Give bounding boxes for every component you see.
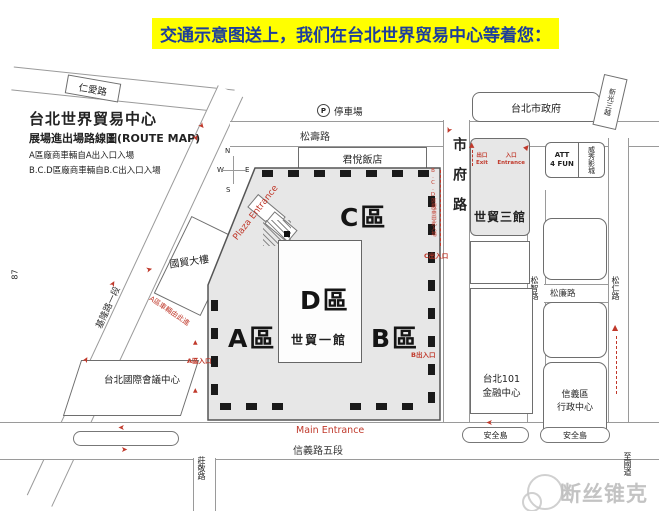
zone-c-label: C區 — [340, 198, 387, 234]
flow-arrow-up-icon: ▲ — [612, 324, 618, 332]
watermark-logo-circle — [522, 492, 542, 511]
parking-icon: P — [317, 104, 330, 117]
safety-island-label: 安全島 — [484, 430, 508, 441]
ticc-building-shape — [63, 360, 199, 416]
songren-road-label: 松仁路 — [610, 276, 621, 300]
legend-building-name: 台北世界貿易中心 — [29, 108, 157, 129]
shifu-road-label: 市府路 — [449, 137, 469, 227]
songshou-road-label: 松壽路 — [300, 128, 330, 143]
hall3-annex-block — [470, 241, 530, 284]
gate-b-label: B出入口 — [411, 349, 435, 359]
admin-line2: 行政中心 — [557, 400, 593, 413]
hall3-building: 世貿三館 出口 Exit 入口 Entrance — [470, 138, 530, 236]
hall3-label: 世貿三館 — [471, 208, 529, 225]
admin-line1: 信義區 — [561, 387, 588, 400]
legend-note-a: A區廠商車輛自A出入口入場 — [29, 149, 134, 161]
att-label: ATT 4 FUN — [546, 151, 578, 169]
city-block-mid — [543, 302, 607, 358]
safety-island-pill: 安全島 — [462, 427, 529, 443]
main-entrance-label: Main Entrance — [296, 425, 364, 436]
hall3-entry-en: Entrance — [497, 160, 525, 166]
hall3-exit-gate: 出口 Exit — [476, 153, 488, 167]
hall3-exit-cn: 出口 — [476, 153, 487, 159]
zhuangjing-road-label: 莊敬路 — [196, 456, 207, 480]
hall3-entrance-gate: 入口 Entrance — [497, 153, 525, 167]
gate-a-label: A區入口 — [187, 355, 212, 365]
taipei101-building: 台北101 金融中心 — [470, 288, 533, 414]
flow-arrow-up-icon: ▲ — [469, 142, 474, 149]
ramp-block — [284, 231, 290, 237]
vieshow-label: 威秀影城 — [579, 146, 604, 174]
flow-arrow-up-icon: ▲ — [193, 340, 198, 346]
compass-n: N — [225, 147, 230, 155]
renai-road-band — [11, 66, 234, 113]
page-title: 交通示意图送上，我们在台北世界贸易中心等着您： — [152, 18, 559, 49]
flow-arrow-icon: ➤ — [121, 446, 128, 454]
taipei101-line2: 金融中心 — [482, 385, 520, 399]
flow-arrow-icon: ➤ — [145, 265, 154, 274]
taipei101-line1: 台北101 — [483, 371, 520, 385]
legend-note-bcd: B.C.D區廠商車輛自B.C出入口入場 — [29, 164, 161, 176]
city-block-upper — [543, 218, 607, 280]
flow-arrow-icon: ➤ — [486, 418, 493, 426]
safety-island-label: 安全島 — [563, 430, 587, 441]
city-hall-building: 台北市政府 — [472, 92, 600, 122]
xinyi-road-label: 信義路五段 — [293, 442, 343, 457]
ticc-label: 台北國際會議中心 — [104, 372, 180, 386]
parking-label: 停車場 — [334, 104, 363, 118]
att-vieshow-building: ATT 4 FUN 威秀影城 — [545, 142, 605, 178]
flow-arrow-icon: ➤ — [118, 423, 125, 431]
hall3-entry-cn: 入口 — [506, 153, 517, 159]
att-line1: ATT — [555, 151, 570, 159]
flow-dash-line — [616, 336, 617, 394]
songlian-road-label: 松廉路 — [550, 287, 576, 299]
page-number: 87 — [11, 269, 20, 279]
hall3-exit-en: Exit — [476, 160, 488, 166]
to-highway-label: 至國道 — [622, 452, 633, 476]
legend-route-map: 展場進出場路線圖(ROUTE MAP) — [29, 130, 200, 146]
watermark-text: 断丝锥克星 — [560, 478, 659, 511]
flow-dash-line — [440, 170, 441, 246]
route-map-page: 交通示意图送上，我们在台北世界贸易中心等着您： 仁愛路 基隆路一段 松壽路 市府… — [0, 0, 659, 511]
safety-island-pill — [73, 431, 179, 446]
hall1-label: 世貿一館 — [291, 331, 347, 348]
zone-d-label: D區 — [300, 281, 350, 317]
gate-c-label: C出入口 — [424, 250, 448, 260]
flow-bcd-label: B.C.D區廠商由此入場 — [429, 168, 437, 237]
att-line2: 4 FUN — [550, 160, 574, 168]
flow-dash-line — [472, 150, 473, 166]
safety-island-pill: 安全島 — [540, 427, 610, 443]
zone-a-label: A區 — [228, 319, 276, 355]
flow-arrow-up-icon: ▲ — [193, 388, 198, 394]
